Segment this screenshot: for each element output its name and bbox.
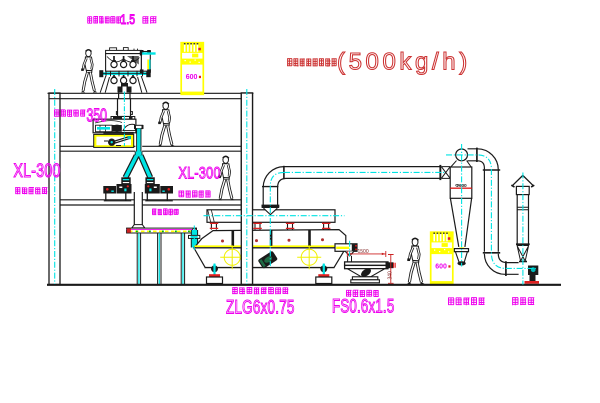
svg-text:600: 600 bbox=[186, 74, 198, 81]
svg-text:FS0.6x1.5: FS0.6x1.5 bbox=[332, 296, 394, 317]
svg-text:ZLG6x0.75: ZLG6x0.75 bbox=[226, 297, 295, 318]
svg-text:1500: 1500 bbox=[358, 249, 369, 255]
svg-text:XL-300: XL-300 bbox=[14, 160, 61, 182]
svg-text:350: 350 bbox=[87, 106, 108, 126]
svg-text:600: 600 bbox=[435, 264, 447, 271]
svg-text:340: 340 bbox=[388, 271, 394, 280]
svg-text:(500kg/h): (500kg/h) bbox=[337, 49, 471, 76]
svg-text:1.5: 1.5 bbox=[121, 12, 136, 28]
svg-text:XL-300: XL-300 bbox=[179, 165, 221, 183]
